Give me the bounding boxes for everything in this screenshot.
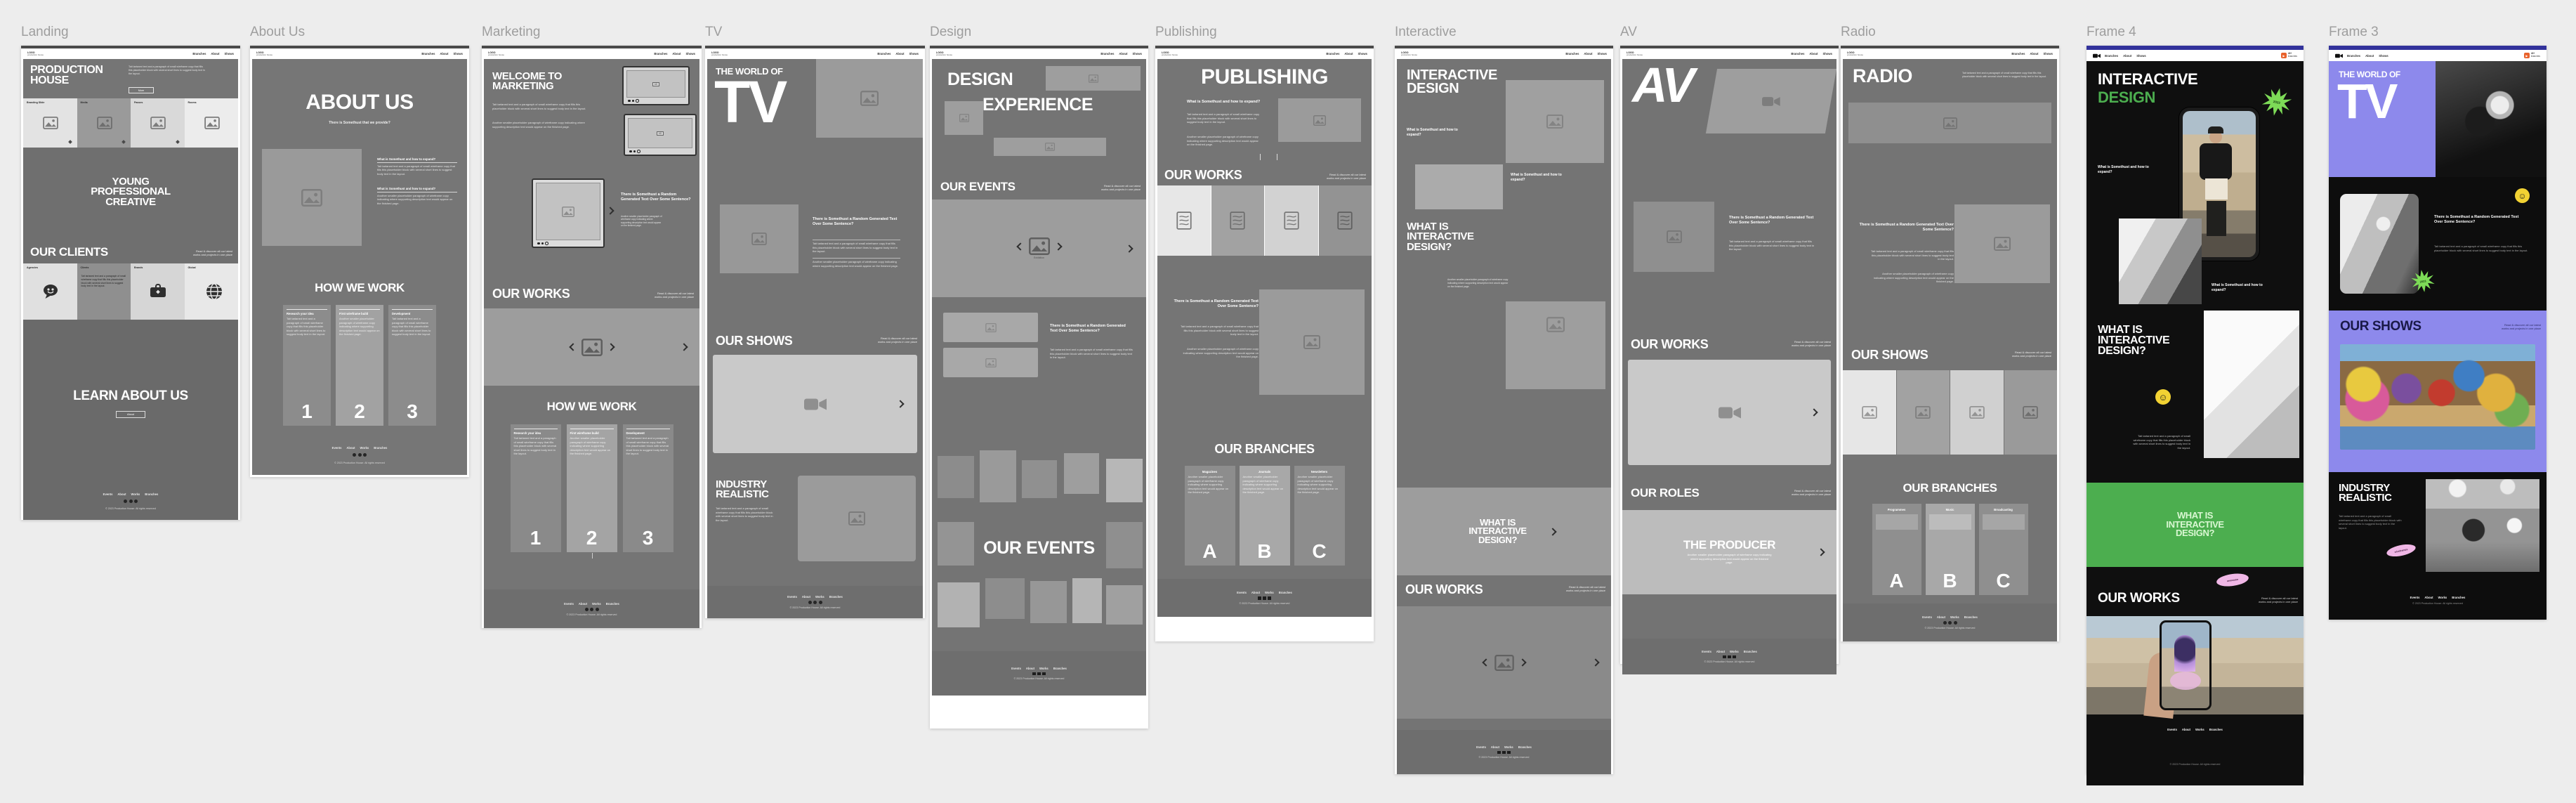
what-image-placeholder[interactable] <box>1506 301 1605 389</box>
footer-link[interactable]: Branches <box>1744 650 1757 653</box>
nav-item[interactable]: Branches <box>877 52 891 56</box>
image-placeholder-icon <box>1494 655 1514 671</box>
nav-item[interactable]: Shows <box>2136 54 2146 58</box>
social-icon[interactable] <box>1733 655 1736 659</box>
hero-image-c[interactable] <box>994 138 1106 156</box>
hero-image-placeholder[interactable] <box>816 59 923 138</box>
hero-video-placeholder[interactable] <box>1706 69 1836 133</box>
branch-card[interactable]: NewslettersAnother smaller placeholder p… <box>1294 466 1345 566</box>
client-card[interactable]: Agencies <box>23 263 77 320</box>
event-tile[interactable] <box>1064 453 1099 494</box>
social-icons <box>1032 672 1046 676</box>
social-icon[interactable] <box>353 453 356 457</box>
step-card[interactable]: Research your ideaTait tartaned text and… <box>283 305 331 426</box>
nav-item[interactable]: Shows <box>454 52 464 56</box>
about-text: Tait tartaned text and a paragraph of sm… <box>2434 244 2531 252</box>
nav-item[interactable]: Shows <box>1358 52 1368 56</box>
group-heading: What is Somethust and how to expand? <box>377 157 457 163</box>
footer-link[interactable]: About <box>2182 728 2190 731</box>
nav-item[interactable]: Branches <box>1565 52 1579 56</box>
social-icon[interactable] <box>1948 621 1952 625</box>
section-text-2: Another smaller placeholder paragraph of… <box>813 258 900 268</box>
social-icon[interactable] <box>1723 655 1726 659</box>
event-tile[interactable] <box>1030 581 1067 623</box>
frame-label-marketing[interactable]: Marketing <box>482 25 540 40</box>
step-card[interactable]: DevelopmentTait tartaned text and a para… <box>388 305 436 426</box>
intro-text-1: Tait tartaned text and a paragraph of sm… <box>1187 112 1261 124</box>
nav: BranchesAboutShows <box>2347 54 2388 58</box>
footer-link[interactable]: About <box>346 446 355 450</box>
social-icon[interactable] <box>1258 596 1261 600</box>
hero-title: AV <box>1632 62 1693 109</box>
show-card[interactable] <box>1897 370 1950 455</box>
about-text-group-2: What is Somethust and how to expand? Ano… <box>377 187 457 205</box>
divider <box>1277 154 1277 160</box>
frame3-hero: THE WORLD OF TV <box>2329 61 2547 177</box>
hero-title-2: EXPERIENCE <box>983 97 1093 114</box>
frame4-footer: © 2023 Production House. All rights rese… <box>2087 743 2304 785</box>
site-logo[interactable]: LOGOproduction house <box>1162 51 1178 57</box>
site-logo[interactable]: LOGOproduction house <box>256 51 272 57</box>
radio-about: There is Somethust a Random Generated Te… <box>1843 196 2057 344</box>
social-icon[interactable] <box>1042 672 1046 676</box>
footer-link[interactable]: Events <box>2167 728 2177 731</box>
section-image-placeholder[interactable] <box>720 204 799 273</box>
social-icon[interactable] <box>1263 596 1266 600</box>
hero-image-a[interactable] <box>1046 66 1141 91</box>
chat-icon <box>42 283 59 300</box>
carousel-next-icon[interactable] <box>680 343 688 351</box>
social-icon[interactable] <box>585 608 589 611</box>
step-card[interactable]: DevelopmentTait tartaned text and a para… <box>623 424 673 552</box>
social-icon[interactable] <box>1497 751 1501 755</box>
nav-item[interactable]: Shows <box>1598 52 1608 56</box>
works-heading: OUR WORKS <box>2098 592 2180 605</box>
branch-image <box>1876 514 1918 530</box>
nav-item[interactable]: Branches <box>1100 52 1114 56</box>
footer-link[interactable]: Works <box>2438 596 2447 599</box>
about-image-placeholder[interactable] <box>262 149 362 246</box>
nav-item[interactable]: Branches <box>2105 54 2118 58</box>
event-tile[interactable] <box>1106 585 1143 625</box>
footer-link[interactable]: About <box>2424 596 2433 599</box>
social-icon[interactable] <box>819 601 822 604</box>
device-caption: Another smaller placeholder paragraph of… <box>621 215 663 228</box>
nav-item[interactable]: About <box>1584 52 1592 56</box>
shows-aside: Read & discover all our latestworks and … <box>878 337 917 344</box>
nav-item[interactable]: About <box>2365 54 2374 58</box>
social-icons <box>585 608 599 611</box>
band-next-icon[interactable] <box>1549 528 1556 535</box>
footer-link[interactable]: Branches <box>1518 745 1532 749</box>
social-icon[interactable] <box>363 453 367 457</box>
nav-item[interactable]: Branches <box>192 52 206 56</box>
social-icon[interactable] <box>129 500 133 503</box>
producer-band[interactable]: THE PRODUCER Another smaller placeholder… <box>1622 510 1836 594</box>
section-question: There is Somethust a Random Generated Te… <box>1857 223 1954 233</box>
footer-link[interactable]: Works <box>1730 650 1739 653</box>
footer-link[interactable]: About <box>117 492 126 496</box>
footer-link[interactable]: Works <box>360 446 369 450</box>
nav-item[interactable]: Shows <box>225 52 235 56</box>
event-tile[interactable] <box>1072 578 1102 623</box>
frame-label-radio[interactable]: Radio <box>1841 25 1876 40</box>
hero-button[interactable]: More <box>129 87 154 93</box>
carousel-next-icon[interactable] <box>1810 408 1818 416</box>
nav-item[interactable]: About <box>672 52 681 56</box>
hero-text-1: Tait tartaned text and a paragraph of sm… <box>492 103 587 110</box>
shows-carousel[interactable] <box>713 355 917 453</box>
design-hero: DESIGN EXPERIENCE OUR EVENTS Read & disc… <box>932 59 1146 200</box>
nav-item[interactable]: About <box>440 52 448 56</box>
nav-item[interactable]: Shows <box>1823 52 1833 56</box>
footer-link[interactable]: Branches <box>145 492 158 496</box>
branch-card[interactable]: JournalsAnother smaller placeholder para… <box>1240 466 1290 566</box>
publishing-works-cards <box>1157 185 1372 256</box>
radio-shows: OUR SHOWS Read & discover all our latest… <box>1843 344 2057 476</box>
work-card[interactable] <box>1319 185 1372 256</box>
carousel-next-icon[interactable] <box>1591 658 1599 666</box>
av-header: LOGOproduction house BranchesAboutShows <box>1620 48 1839 59</box>
step-card[interactable]: First wireframe buildAnother smaller pla… <box>336 305 383 426</box>
marketing-footer: EventsAboutWorksBranches © 2023 Producti… <box>484 589 699 628</box>
footer-link[interactable]: About <box>1491 745 1499 749</box>
smiley-sticker: ☺ <box>2515 188 2530 203</box>
social-icon[interactable] <box>813 601 817 604</box>
nav-item[interactable]: About <box>2030 52 2038 56</box>
frame-label-tv[interactable]: TV <box>705 25 722 40</box>
av-hero: AV <box>1622 59 1836 182</box>
copyright: © 2023 Production House. All rights rese… <box>567 613 617 616</box>
monitor-screen: AD <box>628 118 692 148</box>
footer-link[interactable]: Branches <box>1964 615 1978 619</box>
footer-link[interactable]: Branches <box>606 602 619 606</box>
image-placeholder-icon <box>1969 406 1985 419</box>
feature-image-placeholder[interactable] <box>1259 289 1365 395</box>
divider <box>592 553 593 559</box>
frame-label-interactive[interactable]: Interactive <box>1395 25 1457 40</box>
site-logo[interactable]: LOGOproduction house <box>936 51 952 57</box>
branches-badge[interactable]: ▶ 40+branches <box>2524 53 2540 58</box>
site-logo[interactable]: LOGOproduction house <box>1627 51 1643 57</box>
social-icon[interactable] <box>1268 596 1271 600</box>
chevron-left-icon[interactable] <box>1016 242 1024 250</box>
section-text-1: Tait tartaned text and a paragraph of sm… <box>813 240 900 254</box>
work-card[interactable] <box>1265 185 1318 256</box>
footer-links: EventsAboutWorksBranches <box>1922 615 1978 619</box>
event-tile[interactable] <box>1022 460 1057 498</box>
footer-link[interactable]: Works <box>1504 745 1513 749</box>
site-logo[interactable]: LOGOproduction house <box>1847 51 1863 57</box>
nav-item[interactable]: Shows <box>686 52 696 56</box>
works-aside: Read & discover all our latestworks and … <box>1792 340 1831 347</box>
frame-about: About Us LOGOproduction house BranchesAb… <box>250 46 469 477</box>
work-card[interactable] <box>1211 185 1265 256</box>
nav-item[interactable]: Branches <box>1326 52 1339 56</box>
industry-image-placeholder[interactable] <box>798 476 916 561</box>
social-icon[interactable] <box>1507 751 1511 755</box>
nav: BranchesAboutShows <box>1326 52 1367 56</box>
frame-publishing: Publishing LOGOproduction house Branches… <box>1155 46 1374 641</box>
hero-question-2: What is Somethust and how to expand? <box>2212 283 2275 292</box>
chevron-right-icon[interactable] <box>1518 658 1526 666</box>
step-card[interactable]: Research your ideaTait tartaned text and… <box>511 424 561 552</box>
social-icons <box>124 500 138 503</box>
footer-link[interactable]: Events <box>1922 615 1932 619</box>
frame-label-frame4[interactable]: Frame 4 <box>2087 25 2136 40</box>
nav-item[interactable]: Branches <box>654 52 667 56</box>
show-card[interactable] <box>1843 370 1896 455</box>
section-image-placeholder[interactable] <box>1634 202 1714 272</box>
footer-links: EventsAboutWorksBranches <box>1702 650 1757 653</box>
nav-item[interactable]: Shows <box>1133 52 1143 56</box>
footer-link[interactable]: Events <box>1237 591 1247 594</box>
industry-text: Tait tartaned text and a paragraph of sm… <box>716 507 777 522</box>
person-shirt <box>2200 143 2232 180</box>
footer-link[interactable]: Events <box>1011 667 1021 670</box>
footer-link[interactable]: About <box>1937 615 1945 619</box>
design-carousel[interactable]: Exhibition <box>932 200 1146 297</box>
event-tile[interactable] <box>938 456 974 498</box>
event-tile[interactable] <box>1106 522 1143 568</box>
image-placeholder-icon <box>581 339 603 356</box>
hero-question-2: What is Somethust and how to expand? <box>1511 173 1572 182</box>
copyright: © 2023 Production House. All rights rese… <box>1925 627 1976 629</box>
hero-image-b[interactable] <box>945 101 983 135</box>
hero-title: WELCOME TO MARKETING <box>492 72 563 92</box>
image-placeholder-icon <box>848 511 865 525</box>
branch-image <box>1929 514 1971 530</box>
image-placeholder-icon <box>860 91 879 106</box>
event-tile[interactable] <box>980 450 1016 502</box>
social-icon[interactable] <box>1502 751 1506 755</box>
hero-banner-placeholder[interactable] <box>1848 103 2051 143</box>
ad-label: AD <box>657 131 664 136</box>
nav-item[interactable]: Branches <box>1791 52 1804 56</box>
branch-card[interactable]: MusicB <box>1926 504 1975 595</box>
social-icon[interactable] <box>1943 621 1947 625</box>
info-image-2[interactable] <box>943 348 1038 377</box>
nav-item[interactable]: Shows <box>909 52 919 56</box>
frame4-green-band[interactable]: WHAT IS INTERACTIVE DESIGN? <box>2087 483 2304 567</box>
cta-button[interactable]: About <box>116 411 145 418</box>
works-carousel[interactable] <box>1628 360 1831 465</box>
pink-sticker: awesome <box>2216 572 2249 588</box>
section-question: There is Somethust a Random Generated Te… <box>1729 216 1817 226</box>
av-roles: OUR ROLES Read & discover all our latest… <box>1622 481 1836 639</box>
footer-link[interactable]: About <box>1251 591 1260 594</box>
footer-link[interactable]: Branches <box>1279 591 1292 594</box>
hero-text-2: Another smaller placeholder paragraph of… <box>492 121 587 129</box>
image-placeholder-icon <box>985 323 997 332</box>
branch-card[interactable]: MagazinesAnother smaller placeholder par… <box>1185 466 1235 566</box>
person-apron <box>2205 178 2228 200</box>
footer-link[interactable]: Branches <box>2209 728 2223 731</box>
footer-link[interactable]: Events <box>1702 650 1711 653</box>
works-carousel[interactable] <box>1397 606 1611 719</box>
nav: BranchesAboutShows <box>2105 54 2146 58</box>
band-next-icon[interactable] <box>1817 548 1825 556</box>
monitor-screen: AD <box>626 70 685 98</box>
event-tile[interactable] <box>938 582 980 627</box>
hero-image-placeholder[interactable] <box>1506 80 1604 163</box>
image-placeholder-icon <box>1029 237 1050 255</box>
nav-item[interactable]: Shows <box>2044 52 2053 56</box>
site-logo[interactable]: LOGOproduction house <box>27 51 44 57</box>
footer-link[interactable]: Events <box>1476 745 1486 749</box>
image-placeholder-icon <box>1862 406 1877 419</box>
camera-logo-icon[interactable] <box>2093 53 2101 58</box>
show-card[interactable] <box>2004 370 2058 455</box>
footer-link[interactable]: Branches <box>1053 667 1067 670</box>
av-footer: EventsAboutWorksBranches © 2023 Producti… <box>1622 639 1836 674</box>
work-card[interactable] <box>1157 185 1211 256</box>
globe-icon <box>206 283 223 300</box>
nav-item[interactable]: About <box>1344 52 1353 56</box>
puppet-show-photo <box>2340 344 2535 450</box>
nav-item[interactable]: Shows <box>2379 54 2388 58</box>
frame-label-frame3[interactable]: Frame 3 <box>2329 25 2379 40</box>
carousel-next-icon[interactable] <box>1125 244 1133 252</box>
person-hat <box>2208 126 2223 133</box>
footer-link[interactable]: Works <box>1039 667 1049 670</box>
footer-link[interactable]: Works <box>815 595 824 599</box>
chevron-right-icon[interactable] <box>607 343 615 351</box>
branches-badge[interactable]: ▶ 40+branches <box>2281 53 2297 58</box>
branch-card[interactable]: BroadcastingC <box>1979 504 2028 595</box>
divider <box>1260 154 1261 160</box>
producer-title: THE PRODUCER <box>1683 540 1775 551</box>
interactive-band[interactable]: WHAT IS INTERACTIVE DESIGN? <box>1397 488 1611 575</box>
landing-client-cards: Agencies ClientsTait tartaned text and a… <box>23 263 238 320</box>
info-image-1[interactable] <box>943 313 1038 342</box>
social-icon[interactable] <box>1032 672 1036 676</box>
frame-label-about[interactable]: About Us <box>250 25 305 40</box>
chevron-right-icon[interactable] <box>1054 242 1062 250</box>
nav: BranchesAboutShows <box>2011 52 2053 56</box>
frame-label-publishing[interactable]: Publishing <box>1155 25 1217 40</box>
footer-link[interactable]: Events <box>787 595 797 599</box>
tv-man-photo <box>2340 194 2419 294</box>
client-card[interactable]: ClientsTait tartaned text and a paragrap… <box>77 263 131 320</box>
card[interactable]: Passes <box>131 98 185 148</box>
social-icon[interactable] <box>358 453 362 457</box>
shows-heading: OUR SHOWS <box>1851 349 1928 361</box>
about-body: ABOUT US There is Somethust that we prov… <box>252 59 467 475</box>
nav-item[interactable]: About <box>1809 52 1818 56</box>
design-info: There is Somethust a Random Generated Te… <box>932 297 1146 443</box>
monitor-buttons <box>628 99 639 103</box>
section-text-1: Tait tartaned text and a paragraph of sm… <box>1871 249 1954 261</box>
band-title: YOUNG PROFESSIONAL CREATIVE <box>85 177 176 207</box>
frame-label-landing[interactable]: Landing <box>21 25 69 40</box>
nav-item[interactable]: Branches <box>421 52 435 56</box>
frame-landing: Landing LOGOproduction house BranchesAbo… <box>21 46 240 520</box>
frame-label-av[interactable]: AV <box>1620 25 1637 40</box>
footer-link[interactable]: About <box>1716 650 1725 653</box>
social-icon[interactable] <box>1037 672 1041 676</box>
camera-logo-icon[interactable] <box>2335 53 2343 58</box>
social-icons <box>808 601 822 604</box>
nav-item[interactable]: About <box>1119 52 1127 56</box>
nav-item[interactable]: Branches <box>2347 54 2360 58</box>
social-icon[interactable] <box>124 500 127 503</box>
card[interactable]: Rooms <box>185 98 239 148</box>
footer-link[interactable]: About <box>1026 667 1034 670</box>
shows-aside: Read & discover all our latestworks and … <box>2502 323 2541 330</box>
card[interactable]: Branding Slide <box>23 98 77 148</box>
social-icon[interactable] <box>1954 621 1957 625</box>
show-card[interactable] <box>1950 370 2004 455</box>
site-logo[interactable]: LOGOproduction house <box>488 51 504 57</box>
carousel-next-icon[interactable] <box>896 400 904 407</box>
social-icon[interactable] <box>590 608 593 611</box>
footer-link[interactable]: Events <box>332 446 342 450</box>
event-tile[interactable] <box>938 522 974 566</box>
info-text: Tait tartaned text and a paragraph of sm… <box>1050 348 1134 360</box>
chevron-left-icon[interactable] <box>569 343 577 351</box>
chevron-right-icon[interactable] <box>606 207 614 214</box>
interactive-works: OUR WORKS Read & discover all our latest… <box>1397 575 1611 730</box>
social-icon[interactable] <box>1728 655 1731 659</box>
footer-link[interactable]: About <box>579 602 587 606</box>
nav-item[interactable]: About <box>2123 54 2131 58</box>
event-tile[interactable] <box>1106 459 1143 502</box>
card[interactable]: Media <box>77 98 131 148</box>
footer-link[interactable]: Branches <box>2452 596 2465 599</box>
social-icon[interactable] <box>596 608 599 611</box>
nav-item[interactable]: About <box>211 52 219 56</box>
footer-link[interactable]: Branches <box>374 446 387 450</box>
social-icon[interactable] <box>808 601 812 604</box>
social-icon[interactable] <box>134 500 138 503</box>
chevron-left-icon[interactable] <box>1482 658 1490 666</box>
footer-link[interactable]: Events <box>2410 596 2420 599</box>
step-card[interactable]: First wireframe buildAnother smaller pla… <box>567 424 617 552</box>
event-tile[interactable] <box>985 578 1025 619</box>
footer-link[interactable]: Works <box>592 602 601 606</box>
frame-radio: Radio LOGOproduction house BranchesAbout… <box>1841 46 2059 641</box>
frame4-what: WHAT IS INTERACTIVE DESIGN? ☺ Tait tarta… <box>2087 311 2304 483</box>
frame3-about: ☺ There is Somethust a Random Generated … <box>2329 177 2547 311</box>
site-logo[interactable]: LOGOproduction house <box>711 51 728 57</box>
footer-link[interactable]: Works <box>2195 728 2204 731</box>
footer-link[interactable]: Works <box>1950 615 1959 619</box>
site-logo[interactable]: LOGOproduction house <box>1401 51 1417 57</box>
frame-label-design[interactable]: Design <box>930 25 971 40</box>
footer-link[interactable]: Events <box>564 602 574 606</box>
clients-heading: OUR CLIENTS <box>30 247 108 258</box>
diamond-icon <box>176 140 180 144</box>
landing-footer-cta: LEARN ABOUT US About EventsAboutWorksBra… <box>23 320 238 520</box>
footer-link[interactable]: Branches <box>829 595 843 599</box>
branch-card[interactable]: ProgrammesA <box>1872 504 1921 595</box>
intro-image-placeholder[interactable] <box>1278 98 1361 142</box>
nav-item[interactable]: About <box>895 52 904 56</box>
section-image-placeholder[interactable] <box>1954 204 2050 283</box>
marketing-carousel[interactable] <box>484 308 699 386</box>
footer-link[interactable]: Works <box>1265 591 1274 594</box>
client-card[interactable]: Global <box>185 263 239 320</box>
client-card[interactable]: Brands <box>131 263 185 320</box>
footer-link[interactable]: About <box>802 595 810 599</box>
social-icons <box>1258 596 1271 600</box>
branch-cards: MagazinesAnother smaller placeholder par… <box>1185 466 1345 566</box>
footer-link[interactable]: Events <box>103 492 113 496</box>
nav: BranchesAboutShows <box>1100 52 1142 56</box>
footer-link[interactable]: Works <box>131 492 140 496</box>
nav-item[interactable]: Branches <box>2011 52 2025 56</box>
